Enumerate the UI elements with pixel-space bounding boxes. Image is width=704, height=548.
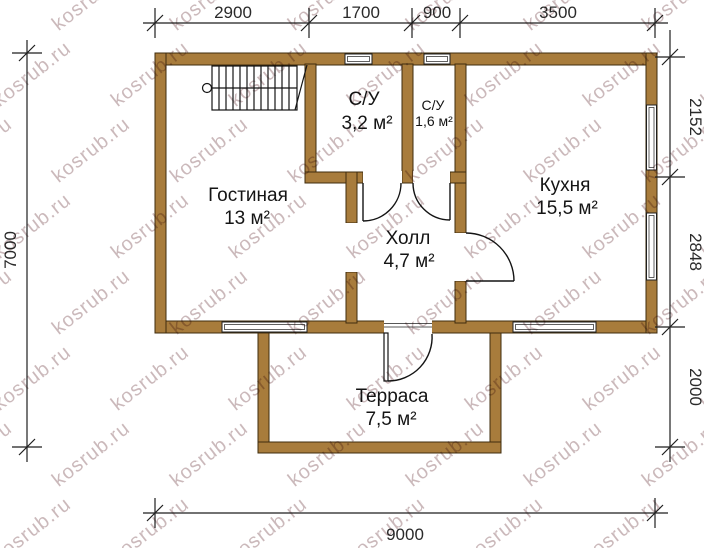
dim-label-9000: 9000 [386, 525, 424, 544]
door-arc-bathroom-big [363, 183, 401, 221]
hall-left-wall-lower [346, 272, 357, 323]
opening-bathroom-big [363, 171, 402, 184]
room-label-kitchen-name: Кухня [540, 175, 591, 196]
dim-label-2900: 2900 [214, 3, 252, 22]
right-wall [646, 53, 657, 333]
door-arc-bathroom-small [413, 183, 450, 220]
room-label-bathroom-small-name: С/У [422, 97, 445, 113]
doors [345, 171, 514, 381]
left-wall [155, 53, 166, 333]
room-label-hall-name: Холл [386, 228, 431, 249]
door-leaf-terrace [384, 333, 388, 381]
dim-label-2000: 2000 [686, 368, 704, 406]
door-arc-kitchen [466, 233, 514, 281]
dim-label-900: 900 [423, 3, 451, 22]
room-label-bathroom-small-area: 1,6 м² [415, 113, 453, 129]
dim-label-1700: 1700 [342, 3, 380, 22]
opening-living-hall [345, 223, 358, 272]
dim-label-2152: 2152 [686, 98, 704, 136]
dimension-top: 2900 1700 900 3500 [143, 3, 668, 38]
window-bottom-living [222, 322, 307, 332]
kitchen-wall-lower [455, 281, 466, 323]
room-label-terrace-name: Терраса [356, 386, 429, 407]
window-top-bathroom-big [345, 54, 372, 64]
terrace-right-wall [490, 333, 501, 453]
dimension-left: 7000 [1, 40, 42, 462]
dimension-right: 2152 2848 2000 [655, 30, 704, 462]
window-top-bathroom-small [424, 54, 450, 64]
room-label-hall-area: 4,7 м² [383, 251, 434, 272]
room-label-bathroom-big-name: С/У [348, 89, 380, 110]
floor-plan-drawing: 2900 1700 900 3500 7000 2152 2848 2000 [0, 0, 704, 548]
window-bottom-kitchen [513, 322, 596, 332]
window-right-kitchen-2 [647, 213, 657, 280]
room-label-living-area: 13 м² [224, 208, 270, 229]
dim-label-7000: 7000 [1, 231, 20, 269]
staircase [203, 65, 308, 110]
floor-plan: 2900 1700 900 3500 7000 2152 2848 2000 [0, 0, 704, 548]
window-right-kitchen-1 [647, 105, 657, 170]
room-label-bathroom-big-area: 3,2 м² [341, 113, 392, 134]
opening-kitchen [454, 233, 467, 281]
dim-label-2848: 2848 [686, 233, 704, 271]
dimension-bottom: 9000 [143, 498, 668, 544]
room-label-terrace-area: 7,5 м² [365, 409, 416, 430]
room-label-kitchen-area: 15,5 м² [536, 198, 598, 219]
bathroom-divider-wall [402, 64, 413, 183]
bathroom-left-wall [305, 64, 316, 183]
kitchen-wall-upper [455, 64, 466, 233]
room-label-living-name: Гостиная [208, 185, 288, 206]
top-wall [155, 53, 657, 65]
dim-label-3500: 3500 [539, 3, 577, 22]
stair-newel-post [203, 84, 212, 93]
door-arc-terrace [388, 334, 432, 381]
terrace-left-wall [258, 333, 269, 453]
hall-left-wall-upper [346, 172, 357, 223]
opening-bathroom-small [413, 171, 450, 184]
bathroom-bottom-wall-right [450, 172, 466, 183]
terrace-bottom-wall [258, 442, 501, 453]
